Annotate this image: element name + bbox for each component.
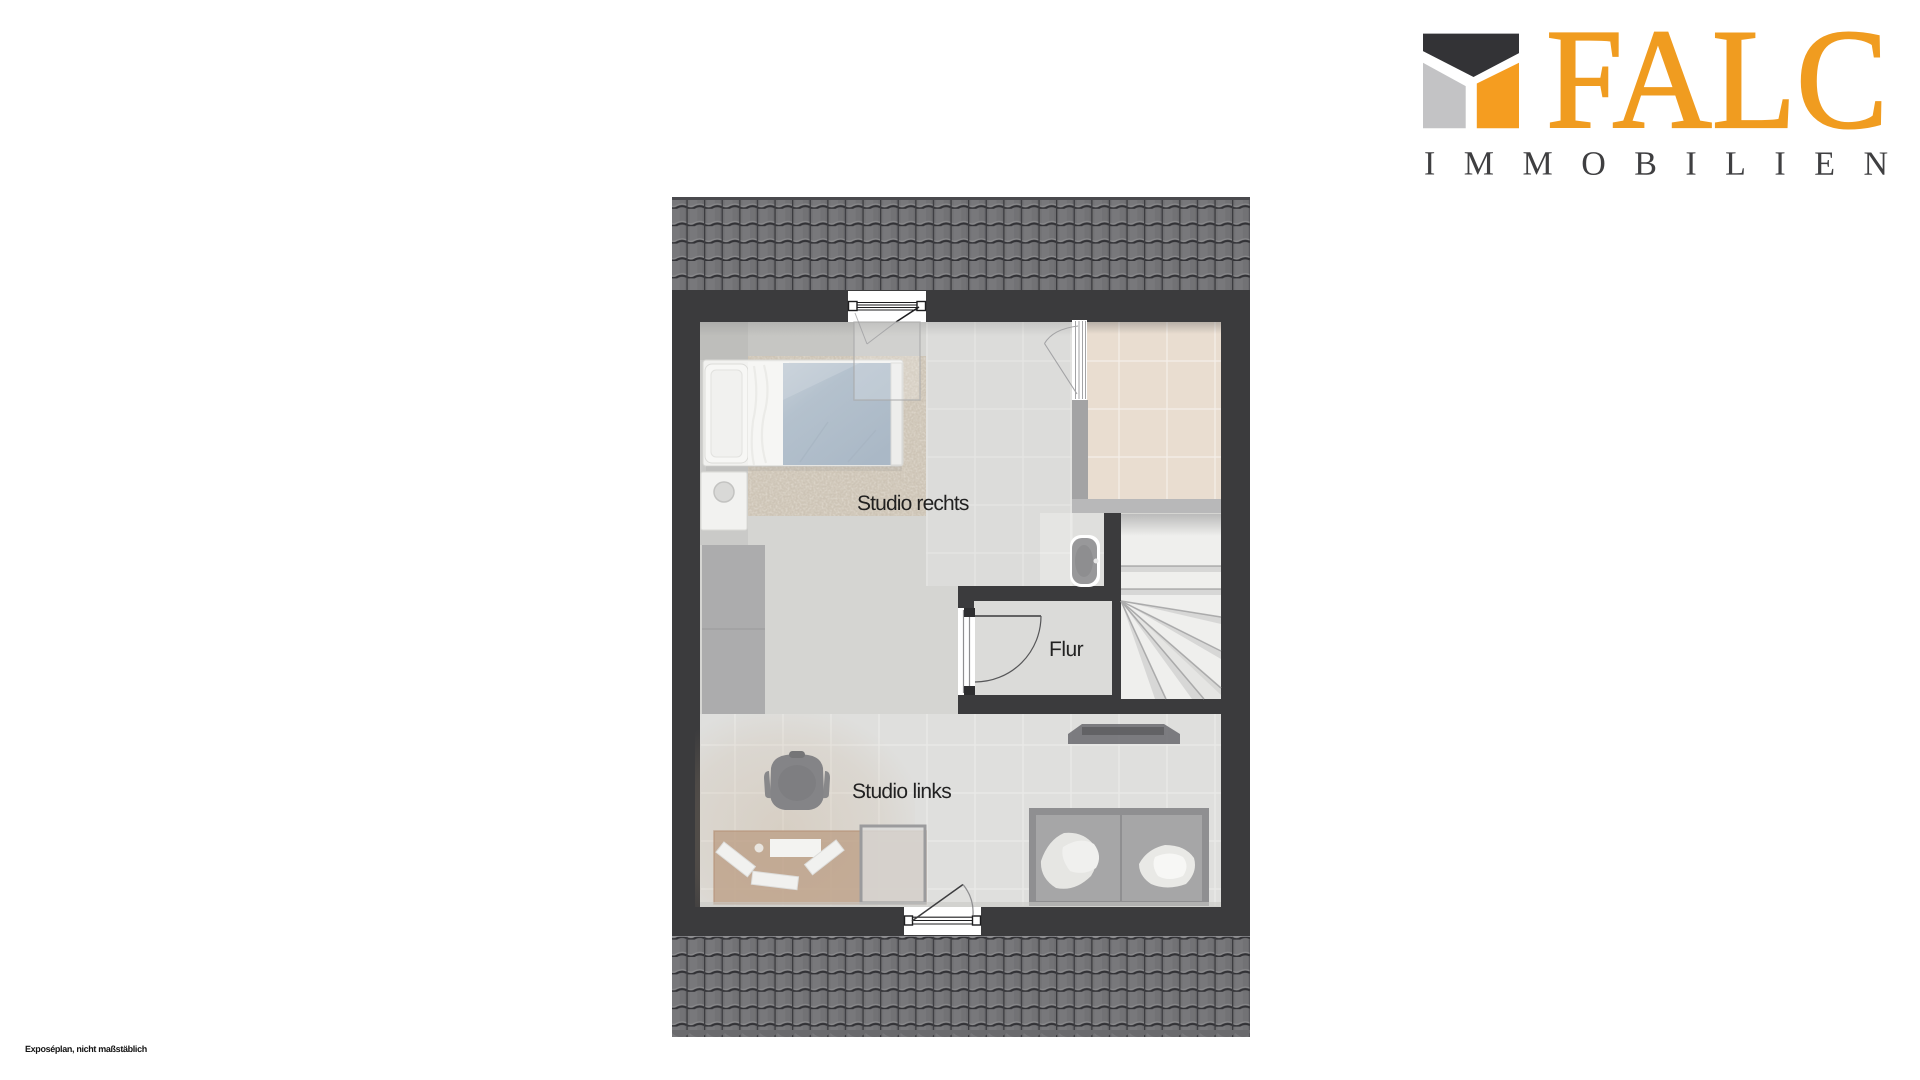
svg-text:Exposéplan, nicht maßstäblich: Exposéplan, nicht maßstäblich bbox=[25, 1044, 147, 1054]
svg-text:FALC: FALC bbox=[1546, 0, 1888, 158]
svg-text:Studio links: Studio links bbox=[852, 780, 951, 803]
svg-text:Studio rechts: Studio rechts bbox=[857, 492, 969, 515]
svg-text:Flur: Flur bbox=[1049, 638, 1084, 661]
svg-text:IMMOBILIEN: IMMOBILIEN bbox=[1424, 146, 1888, 183]
